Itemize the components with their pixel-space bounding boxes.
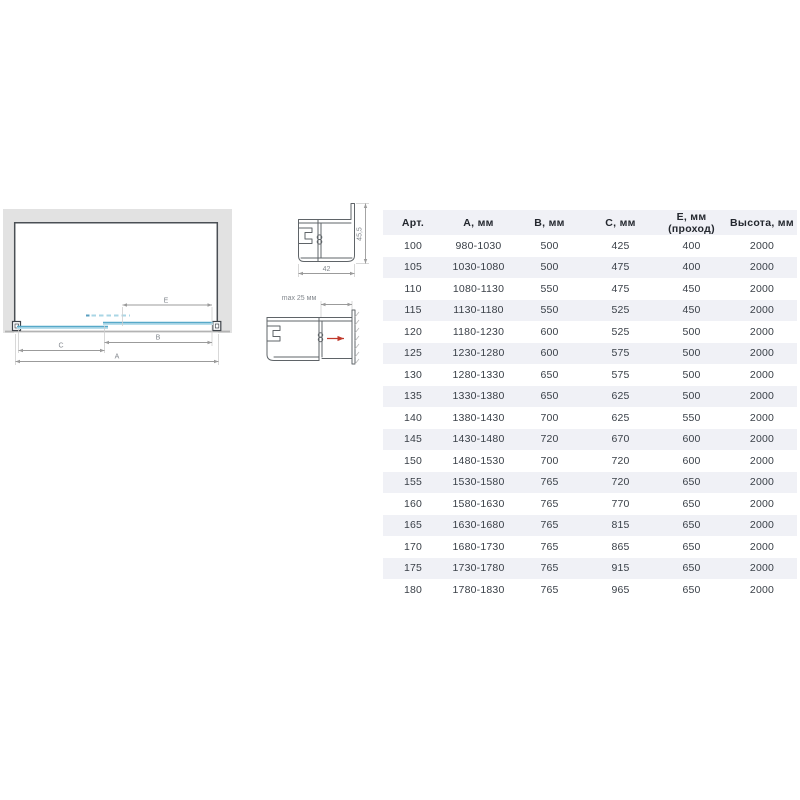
table-cell: 550 — [514, 278, 585, 300]
table-cell: 865 — [585, 536, 656, 558]
table-cell: 100 — [383, 235, 443, 257]
table-cell: 980-1030 — [443, 235, 514, 257]
column-header: Высота, мм — [727, 210, 797, 235]
table-cell: 2000 — [727, 235, 797, 257]
table-cell: 155 — [383, 472, 443, 494]
table-cell: 450 — [656, 278, 727, 300]
wall-bracket-right — [213, 322, 221, 331]
table-cell: 2000 — [727, 472, 797, 494]
table-cell: 125 — [383, 343, 443, 365]
table-cell: 765 — [514, 536, 585, 558]
max-adjustment-label: max 25 мм — [282, 295, 317, 302]
table-cell: 120 — [383, 321, 443, 343]
table-cell: 1680-1730 — [443, 536, 514, 558]
table-cell: 175 — [383, 558, 443, 580]
spec-table: Арт.А, ммВ, ммС, ммЕ, мм (проход)Высота,… — [383, 210, 797, 601]
column-header: А, мм — [443, 210, 514, 235]
dim-label-b: B — [156, 335, 161, 342]
table-cell: 115 — [383, 300, 443, 322]
table-row: 100980-10305004254002000 — [383, 235, 797, 257]
table-cell: 500 — [656, 321, 727, 343]
table-cell: 1530-1580 — [443, 472, 514, 494]
table-cell: 1780-1830 — [443, 579, 514, 601]
table-cell: 110 — [383, 278, 443, 300]
table-cell: 1080-1130 — [443, 278, 514, 300]
table-cell: 765 — [514, 472, 585, 494]
table-cell: 130 — [383, 364, 443, 386]
table-cell: 170 — [383, 536, 443, 558]
table-cell: 550 — [514, 300, 585, 322]
table-row: 1701680-17307658656502000 — [383, 536, 797, 558]
table-cell: 600 — [514, 321, 585, 343]
table-cell: 150 — [383, 450, 443, 472]
table-row: 1551530-15807657206502000 — [383, 472, 797, 494]
table-row: 1351330-13806506255002000 — [383, 386, 797, 408]
table-cell: 2000 — [727, 515, 797, 537]
table-row: 1301280-13306505755002000 — [383, 364, 797, 386]
table-cell: 2000 — [727, 364, 797, 386]
spec-sheet-page: E B C A 42 45,5 max 25 мм — [0, 0, 800, 800]
table-cell: 1630-1680 — [443, 515, 514, 537]
table-cell: 650 — [514, 364, 585, 386]
table-cell: 500 — [514, 257, 585, 279]
table-cell: 650 — [656, 515, 727, 537]
table-cell: 2000 — [727, 257, 797, 279]
column-header: Арт. — [383, 210, 443, 235]
dim-label-e: E — [164, 298, 169, 305]
table-cell: 1430-1480 — [443, 429, 514, 451]
profile-outline — [267, 318, 319, 361]
table-cell: 1030-1080 — [443, 257, 514, 279]
table-row: 1651630-16807658156502000 — [383, 515, 797, 537]
table-cell: 2000 — [727, 558, 797, 580]
column-header: Е, мм (проход) — [656, 210, 727, 235]
table-cell: 650 — [656, 536, 727, 558]
table-cell: 1280-1330 — [443, 364, 514, 386]
table-cell: 625 — [585, 386, 656, 408]
dim-label-c: C — [58, 343, 63, 350]
table-cell: 105 — [383, 257, 443, 279]
table-cell: 575 — [585, 364, 656, 386]
table-row: 1751730-17807659156502000 — [383, 558, 797, 580]
table-cell: 475 — [585, 278, 656, 300]
table-cell: 765 — [514, 515, 585, 537]
table-cell: 765 — [514, 579, 585, 601]
table-cell: 915 — [585, 558, 656, 580]
table-cell: 2000 — [727, 407, 797, 429]
profile-section-bottom: max 25 мм — [253, 290, 375, 368]
spec-table-header: Арт.А, ммВ, ммС, ммЕ, мм (проход)Высота,… — [383, 210, 797, 235]
wall-strip — [352, 310, 355, 364]
table-cell: 500 — [514, 235, 585, 257]
table-cell: 2000 — [727, 493, 797, 515]
dim-label-a: A — [115, 354, 120, 361]
table-cell: 650 — [656, 558, 727, 580]
table-cell: 2000 — [727, 579, 797, 601]
table-cell: 650 — [514, 386, 585, 408]
table-cell: 525 — [585, 300, 656, 322]
table-row: 1451430-14807206706002000 — [383, 429, 797, 451]
table-cell: 1730-1780 — [443, 558, 514, 580]
table-row: 1601580-16307657706502000 — [383, 493, 797, 515]
table-row: 1051030-10805004754002000 — [383, 257, 797, 279]
table-cell: 1480-1530 — [443, 450, 514, 472]
table-cell: 450 — [656, 300, 727, 322]
table-cell: 2000 — [727, 321, 797, 343]
table-cell: 2000 — [727, 429, 797, 451]
table-cell: 2000 — [727, 300, 797, 322]
table-cell: 2000 — [727, 343, 797, 365]
table-row: 1251230-12806005755002000 — [383, 343, 797, 365]
table-cell: 145 — [383, 429, 443, 451]
table-row: 1501480-15307007206002000 — [383, 450, 797, 472]
table-cell: 500 — [656, 386, 727, 408]
table-body: 100980-103050042540020001051030-10805004… — [383, 235, 797, 601]
table-cell: 765 — [514, 558, 585, 580]
column-header: С, мм — [585, 210, 656, 235]
table-row: 1151130-11805505254502000 — [383, 300, 797, 322]
table-cell: 770 — [585, 493, 656, 515]
table-cell: 815 — [585, 515, 656, 537]
table-cell: 720 — [585, 472, 656, 494]
table-cell: 180 — [383, 579, 443, 601]
table-cell: 765 — [514, 493, 585, 515]
table-row: 1401380-14307006255502000 — [383, 407, 797, 429]
table-cell: 650 — [656, 472, 727, 494]
table-cell: 600 — [656, 450, 727, 472]
table-cell: 650 — [656, 579, 727, 601]
table-cell: 650 — [656, 493, 727, 515]
table-cell: 2000 — [727, 278, 797, 300]
table-cell: 670 — [585, 429, 656, 451]
table-cell: 700 — [514, 407, 585, 429]
table-cell: 500 — [656, 343, 727, 365]
table-cell: 965 — [585, 579, 656, 601]
enclosure-interior — [14, 222, 218, 330]
wall-hatching — [355, 312, 359, 364]
table-cell: 1230-1280 — [443, 343, 514, 365]
table-cell: 165 — [383, 515, 443, 537]
table-cell: 720 — [585, 450, 656, 472]
profile-section-top: 42 45,5 — [288, 198, 380, 283]
table-cell: 600 — [514, 343, 585, 365]
table-cell: 400 — [656, 235, 727, 257]
table-cell: 160 — [383, 493, 443, 515]
table-row: 1101080-11305504754502000 — [383, 278, 797, 300]
shower-top-view-diagram: E B C A — [0, 195, 245, 380]
table-cell: 500 — [656, 364, 727, 386]
table-cell: 1130-1180 — [443, 300, 514, 322]
table-cell: 135 — [383, 386, 443, 408]
table-cell: 425 — [585, 235, 656, 257]
table-cell: 1330-1380 — [443, 386, 514, 408]
header-row: Арт.А, ммВ, ммС, ммЕ, мм (проход)Высота,… — [383, 210, 797, 235]
table-cell: 575 — [585, 343, 656, 365]
table-cell: 2000 — [727, 386, 797, 408]
dim-label-height: 45,5 — [357, 227, 364, 241]
table-cell: 2000 — [727, 450, 797, 472]
table-cell: 700 — [514, 450, 585, 472]
table-row: 1201180-12306005255002000 — [383, 321, 797, 343]
table-cell: 2000 — [727, 536, 797, 558]
table-cell: 525 — [585, 321, 656, 343]
table-cell: 140 — [383, 407, 443, 429]
table-cell: 475 — [585, 257, 656, 279]
column-header: В, мм — [514, 210, 585, 235]
table-cell: 1380-1430 — [443, 407, 514, 429]
profile-divider — [319, 318, 322, 361]
table-cell: 1580-1630 — [443, 493, 514, 515]
table-cell: 600 — [656, 429, 727, 451]
table-cell: 625 — [585, 407, 656, 429]
dim-label-width: 42 — [323, 266, 331, 273]
table-cell: 1180-1230 — [443, 321, 514, 343]
table-cell: 550 — [656, 407, 727, 429]
table-cell: 720 — [514, 429, 585, 451]
table-row: 1801780-18307659656502000 — [383, 579, 797, 601]
table-cell: 400 — [656, 257, 727, 279]
